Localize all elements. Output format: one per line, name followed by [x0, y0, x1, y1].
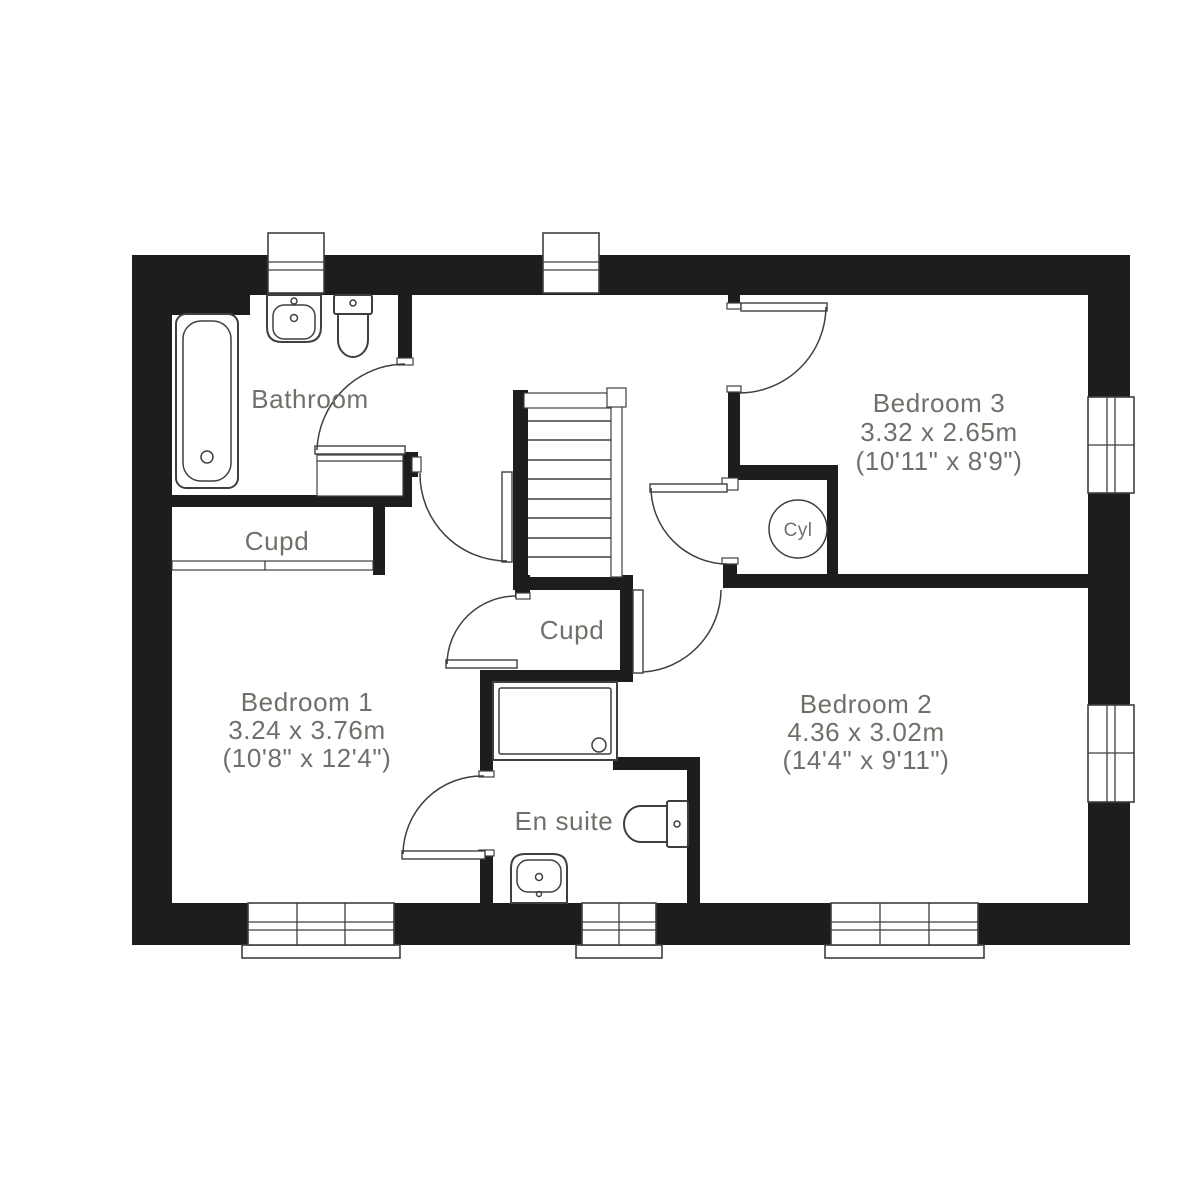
label-ensuite: En suite — [515, 806, 614, 836]
wall-outer-left — [132, 255, 172, 945]
label-cylinder: Cyl — [784, 520, 813, 541]
bathtub — [176, 314, 238, 488]
cupboard-left-front — [172, 561, 373, 570]
floor-plan-page: Bathroom Cupd Cupd Cyl En suite Bedroom … — [0, 0, 1200, 1200]
wall-cylinder-right — [827, 465, 838, 577]
shower-tray — [493, 682, 617, 760]
wall-outer-right — [1088, 255, 1130, 945]
stair-newel-post — [607, 388, 626, 407]
wall-ensuite-left-lower — [480, 853, 493, 903]
label-bathroom: Bathroom — [251, 384, 369, 414]
page-background — [0, 0, 1200, 1200]
wall-stairs-bottom — [513, 577, 633, 590]
wall-ensuite-top — [613, 757, 700, 770]
label-bedroom3-block: Bedroom 3 3.32 x 2.65m (10'11" x 8'9") — [856, 388, 1023, 476]
wall-stairs-left — [513, 390, 528, 590]
label-bedroom1-imperial: (10'8" x 12'4") — [223, 743, 392, 773]
wall-bedroom2-bedroom3-divider — [723, 574, 1088, 588]
floor-plan-drawing: Bathroom Cupd Cupd Cyl En suite Bedroom … — [0, 0, 1200, 1200]
label-bedroom1-block: Bedroom 1 3.24 x 3.76m (10'8" x 12'4") — [223, 687, 392, 773]
label-cupboard-centre: Cupd — [540, 615, 605, 645]
wall-cupboard-centre-right — [620, 575, 633, 673]
label-cupboard-left: Cupd — [245, 526, 310, 556]
label-bedroom2-metric: 4.36 x 3.02m — [787, 717, 945, 747]
toilet-bathroom — [334, 295, 372, 357]
label-bedroom2-imperial: (14'4" x 9'11") — [783, 745, 950, 775]
washbasin-ensuite — [511, 854, 567, 903]
label-bedroom3-name: Bedroom 3 — [873, 388, 1006, 418]
window-bathroom-top — [268, 233, 324, 293]
stair-banister — [611, 393, 622, 577]
window-bedroom2-bottom — [825, 903, 984, 958]
label-bedroom1-name: Bedroom 1 — [241, 687, 374, 717]
label-bedroom1-metric: 3.24 x 3.76m — [228, 715, 386, 745]
window-ensuite-bottom — [576, 903, 662, 958]
wall-cupboard-left-right — [373, 497, 385, 575]
window-bedroom1-bottom — [242, 903, 400, 958]
stair-top-nosing — [524, 393, 616, 408]
washbasin-bathroom — [267, 295, 321, 342]
window-landing-top — [543, 233, 599, 293]
window-bedroom3-right — [1088, 397, 1134, 493]
label-bedroom3-metric: 3.32 x 2.65m — [860, 417, 1018, 447]
wall-cylinder-top — [728, 465, 838, 480]
wall-ensuite-left-upper — [480, 670, 493, 777]
label-bedroom2-name: Bedroom 2 — [800, 689, 933, 719]
label-bedroom3-imperial: (10'11" x 8'9") — [856, 446, 1023, 476]
wall-chunk-top-left — [132, 255, 250, 315]
wall-cupboard-centre-bottom — [485, 670, 633, 682]
toilet-ensuite — [624, 801, 688, 847]
wall-bathroom-right-upper — [398, 295, 412, 365]
bathroom-shelf — [317, 455, 403, 496]
label-bedroom2-block: Bedroom 2 4.36 x 3.02m (14'4" x 9'11") — [783, 689, 950, 775]
window-bedroom2-right — [1088, 705, 1134, 802]
